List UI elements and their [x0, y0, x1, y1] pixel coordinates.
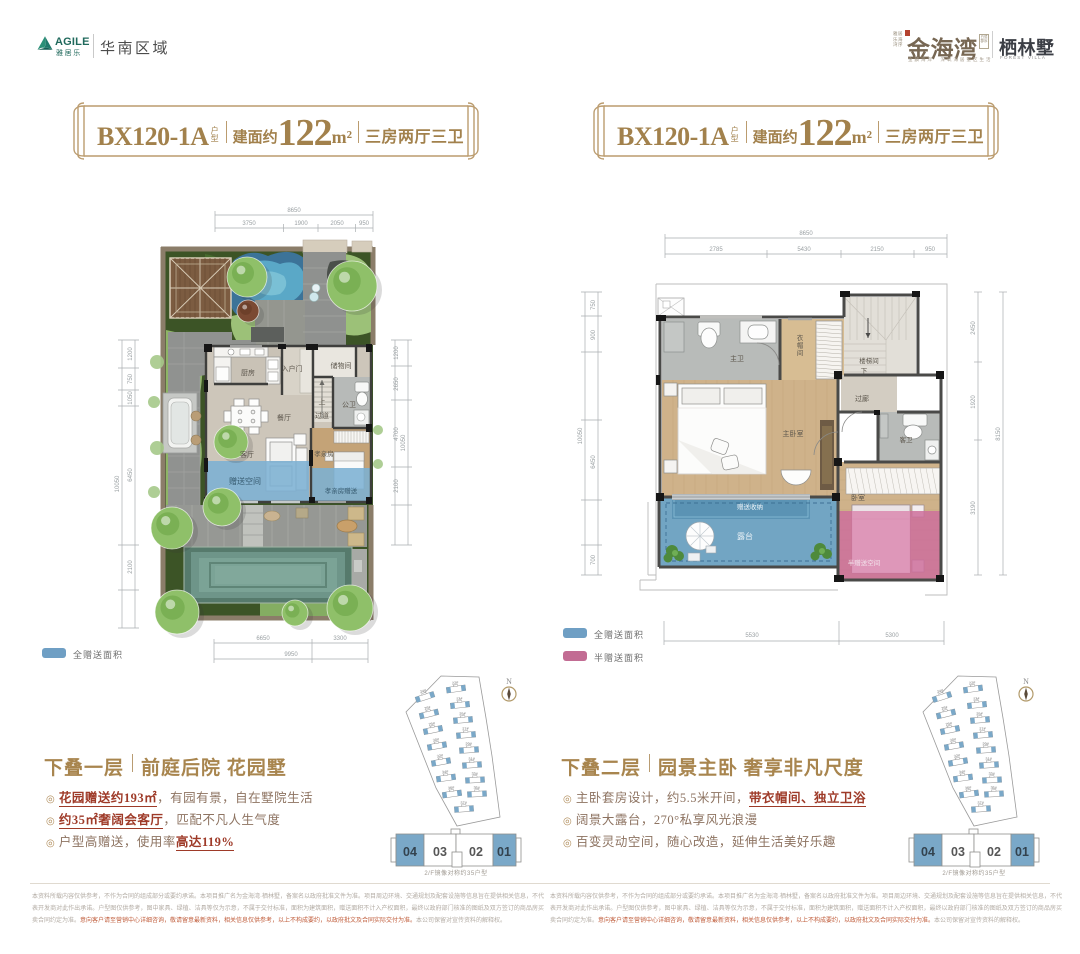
- svg-text:1920: 1920: [971, 395, 977, 409]
- svg-text:2785: 2785: [709, 247, 723, 253]
- svg-text:950: 950: [925, 247, 936, 253]
- svg-text:950: 950: [359, 221, 370, 227]
- svg-text:10050: 10050: [401, 434, 407, 451]
- svg-text:8150: 8150: [996, 427, 1002, 441]
- svg-text:卧室: 卧室: [851, 493, 865, 502]
- svg-text:4700: 4700: [394, 427, 400, 441]
- svg-text:37#: 37#: [977, 801, 984, 805]
- svg-text:衣帽间: 衣帽间: [797, 333, 804, 357]
- svg-text:6450: 6450: [591, 455, 597, 469]
- svg-text:孝亲房: 孝亲房: [314, 449, 334, 458]
- svg-text:3750: 3750: [242, 221, 256, 227]
- svg-text:8650: 8650: [287, 208, 301, 214]
- svg-text:2050: 2050: [330, 221, 344, 227]
- svg-text:8650: 8650: [799, 231, 813, 237]
- svg-text:31#: 31#: [985, 757, 992, 761]
- svg-text:29#: 29#: [982, 742, 989, 746]
- svg-text:上: 上: [319, 397, 326, 406]
- svg-text:公卫: 公卫: [342, 401, 356, 409]
- svg-text:1050: 1050: [128, 391, 134, 405]
- svg-text:赠送收纳: 赠送收纳: [737, 502, 763, 511]
- svg-text:2100: 2100: [394, 479, 400, 493]
- svg-text:入户门: 入户门: [282, 364, 303, 373]
- svg-text:厨房: 厨房: [241, 368, 255, 377]
- svg-text:3300: 3300: [333, 636, 347, 642]
- svg-text:主卧室: 主卧室: [783, 429, 804, 438]
- svg-text:3190: 3190: [971, 501, 977, 515]
- svg-text:02: 02: [469, 845, 483, 859]
- svg-text:5300: 5300: [885, 633, 899, 639]
- svg-text:04: 04: [921, 845, 935, 859]
- svg-text:01: 01: [497, 845, 511, 859]
- svg-text:下: 下: [861, 367, 868, 375]
- svg-text:04: 04: [403, 845, 417, 859]
- svg-text:客卫: 客卫: [900, 435, 914, 444]
- svg-text:N: N: [506, 677, 512, 686]
- svg-text:5530: 5530: [745, 633, 759, 639]
- svg-text:1200: 1200: [394, 346, 400, 360]
- svg-text:6650: 6650: [256, 636, 270, 642]
- svg-text:2100: 2100: [128, 560, 134, 574]
- svg-text:9950: 9950: [284, 652, 298, 658]
- svg-text:01: 01: [1015, 845, 1029, 859]
- svg-text:5430: 5430: [797, 247, 811, 253]
- svg-text:过廊: 过廊: [855, 394, 869, 403]
- svg-text:35#: 35#: [990, 786, 997, 790]
- svg-text:02: 02: [987, 845, 1001, 859]
- svg-text:2450: 2450: [971, 321, 977, 335]
- svg-text:6450: 6450: [128, 468, 134, 482]
- svg-text:37#: 37#: [460, 801, 467, 805]
- svg-text:03: 03: [951, 845, 965, 859]
- svg-text:10050: 10050: [115, 475, 121, 492]
- svg-text:33#: 33#: [988, 772, 995, 776]
- svg-text:33#: 33#: [471, 772, 478, 776]
- svg-text:半赠送空间: 半赠送空间: [848, 558, 881, 567]
- svg-text:赠送空间: 赠送空间: [229, 476, 261, 486]
- svg-text:储物间: 储物间: [331, 361, 352, 370]
- svg-text:750: 750: [591, 299, 597, 310]
- svg-text:10050: 10050: [578, 427, 584, 444]
- svg-text:700: 700: [591, 554, 597, 565]
- svg-text:餐厅: 餐厅: [277, 413, 291, 422]
- svg-text:主卫: 主卫: [730, 354, 744, 363]
- svg-text:露台: 露台: [737, 531, 753, 541]
- svg-text:过道: 过道: [315, 411, 329, 420]
- svg-text:31#: 31#: [468, 757, 475, 761]
- svg-text:2650: 2650: [394, 377, 400, 391]
- svg-text:35#: 35#: [473, 786, 480, 790]
- svg-text:楼梯间: 楼梯间: [859, 356, 879, 365]
- svg-text:N: N: [1023, 677, 1029, 686]
- svg-text:03: 03: [433, 845, 447, 859]
- svg-text:1200: 1200: [128, 347, 134, 361]
- svg-text:2150: 2150: [870, 247, 884, 253]
- svg-text:孝亲房赠送: 孝亲房赠送: [325, 486, 358, 495]
- svg-text:900: 900: [591, 329, 597, 340]
- svg-text:29#: 29#: [465, 742, 472, 746]
- svg-text:750: 750: [128, 373, 134, 384]
- svg-text:客厅: 客厅: [240, 450, 254, 459]
- svg-text:1900: 1900: [294, 221, 308, 227]
